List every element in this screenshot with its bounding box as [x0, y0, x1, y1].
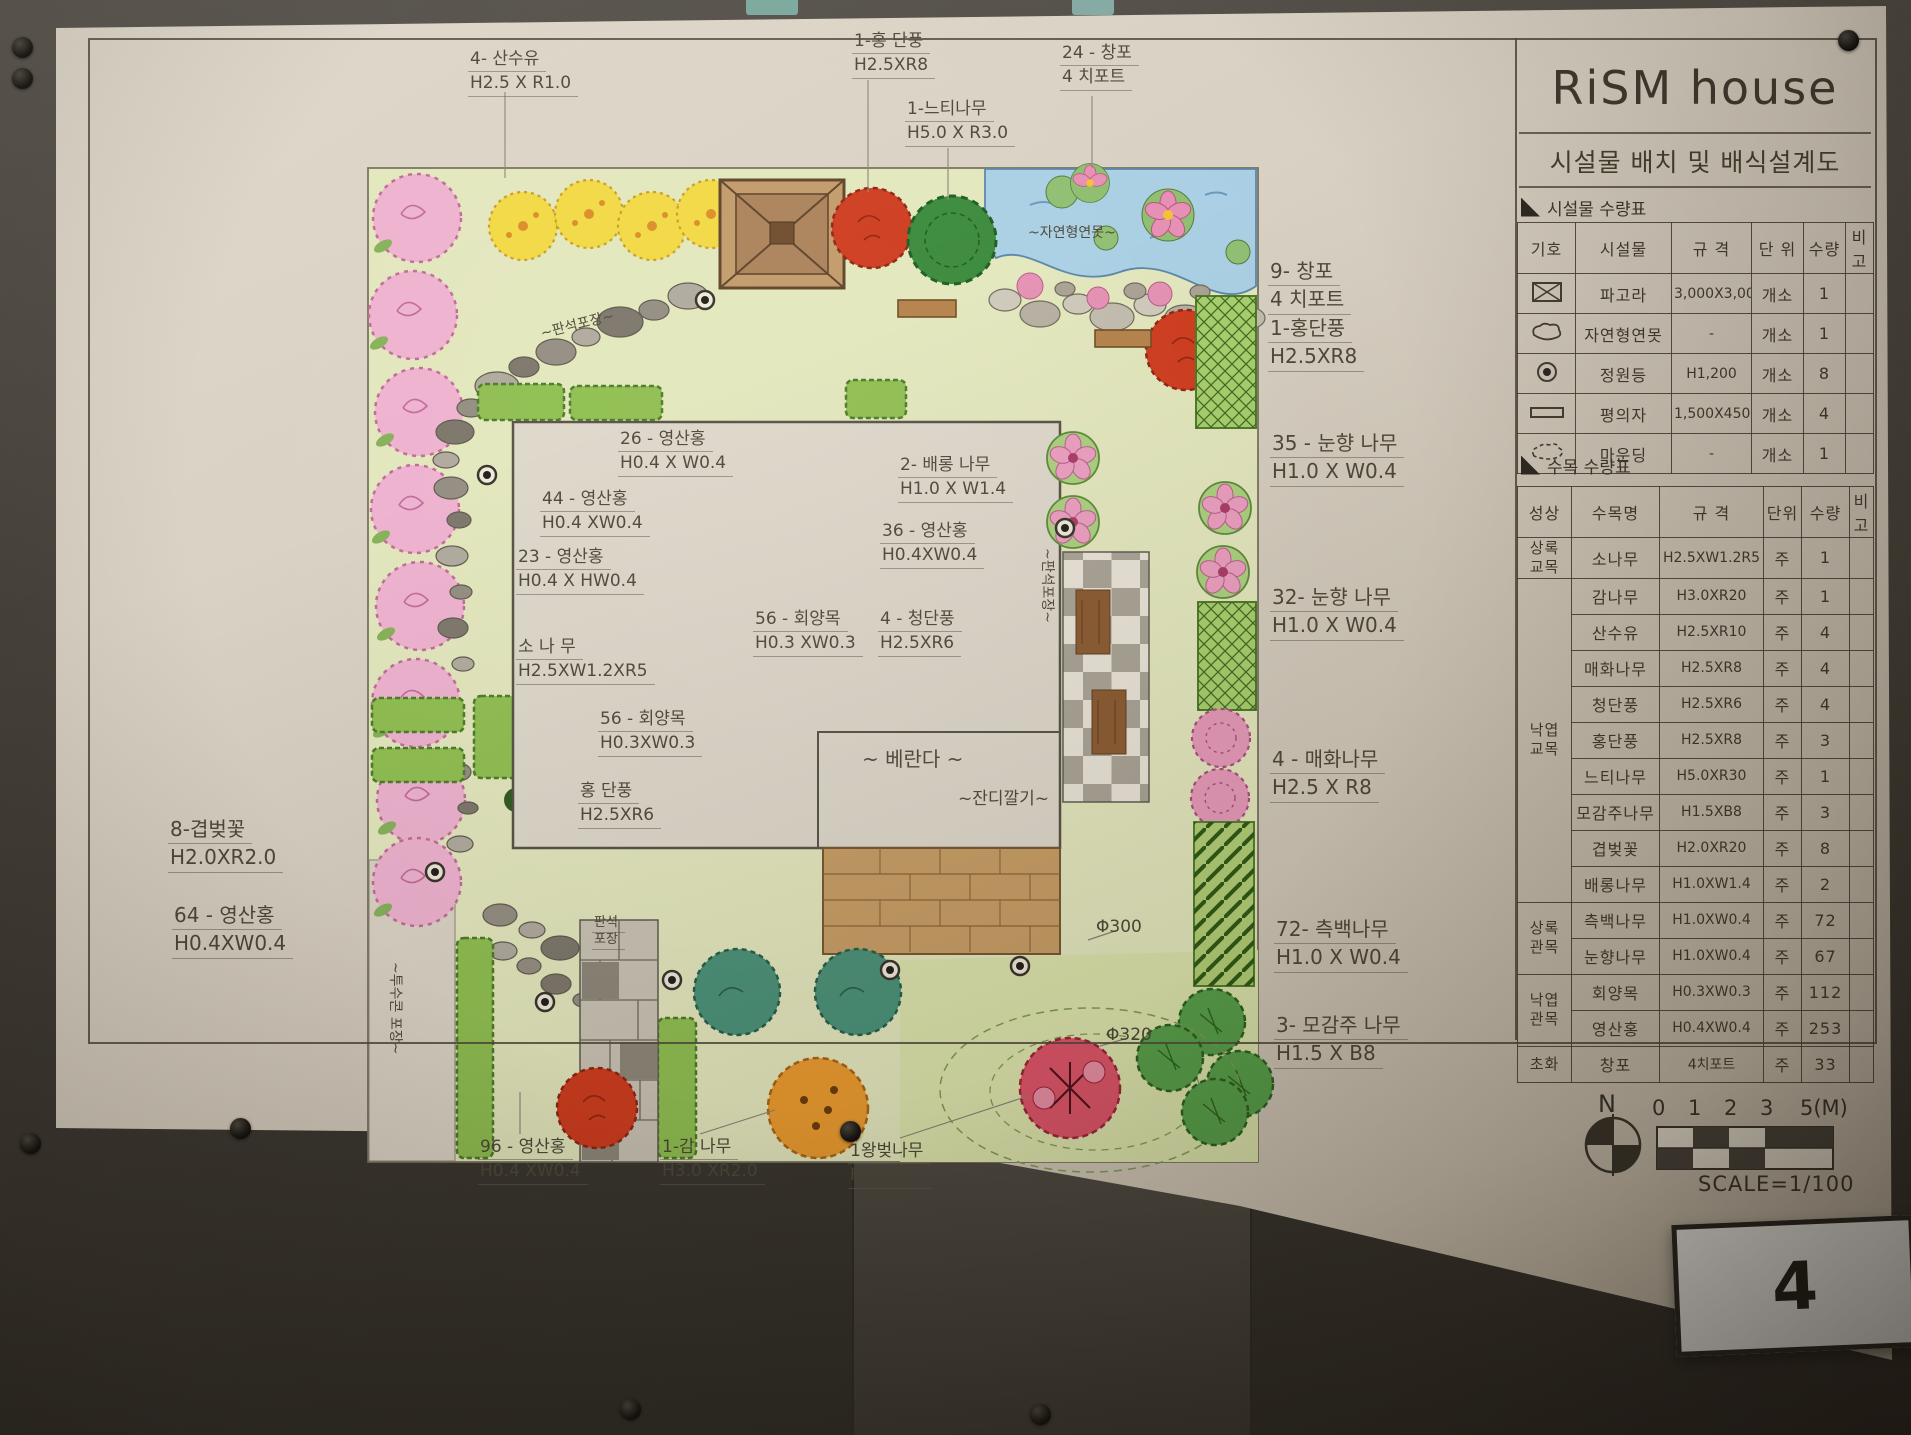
- tree-note: [1850, 938, 1874, 974]
- tree-header-cell: 성상: [1518, 487, 1572, 538]
- label-gyeopbeot-left-line: H2.0XR2.0: [168, 844, 283, 872]
- label-veranda-line: ~ 베란다 ~: [862, 746, 963, 772]
- tree-spec: H2.5XR8: [1660, 650, 1764, 686]
- tree-spec: H0.3XW0.3: [1660, 974, 1764, 1010]
- tree-note: [1850, 578, 1874, 614]
- label-cheukbaek-right: 72- 측백나무H1.0 X W0.4: [1274, 916, 1408, 973]
- label-hoeyang-56b-line: 56 - 회양목: [598, 708, 693, 732]
- label-sonamu-line: 소 나 무: [516, 636, 583, 660]
- label-lawn: ~잔디깔기~: [958, 788, 1049, 810]
- label-sansuyu-top-line: H2.5 X R1.0: [468, 72, 578, 96]
- tape-tab: [1072, 0, 1114, 15]
- tree-table-caption: 수목 수량표: [1521, 452, 1631, 478]
- drawing-subtitle: 시설물 배치 및 배식설계도: [1519, 136, 1871, 188]
- tree-unit: 주: [1764, 758, 1802, 794]
- tree-qty: 2: [1802, 866, 1850, 902]
- pond-icon: [1518, 314, 1576, 354]
- label-mogamju-right-line: 3- 모감주 나무: [1274, 1012, 1408, 1040]
- label-yeongsan-23-line: H0.4 X HW0.4: [516, 570, 644, 594]
- tree-name: 청단풍: [1572, 686, 1660, 722]
- label-changpo-right-line: H2.5XR8: [1268, 343, 1364, 371]
- tree-category: 상록 교목: [1518, 538, 1572, 579]
- facility-table-header: 기호시설물규 격단 위수량비고: [1518, 223, 1874, 274]
- tree-unit: 주: [1764, 1010, 1802, 1046]
- label-changpo-right: 9- 창포4 치포트1-홍단풍H2.5XR8: [1268, 258, 1364, 372]
- label-lawn-line: ~잔디깔기~: [958, 788, 1049, 810]
- tree-note: [1850, 830, 1874, 866]
- triangle-marker-icon: [1521, 456, 1540, 475]
- facility-header-cell: 비고: [1846, 223, 1874, 274]
- label-phi300-line: Φ300: [1096, 916, 1142, 938]
- tree-name: 회양목: [1572, 974, 1660, 1010]
- facility-header-cell: 시설물: [1576, 223, 1672, 274]
- facility-qty: 4: [1804, 394, 1846, 434]
- tree-row: 낙엽 관목회양목H0.3XW0.3주112: [1518, 974, 1874, 1010]
- facility-note: [1846, 274, 1874, 314]
- label-tusukon-line: ~투수콘 포장~: [386, 962, 404, 1054]
- scale-tick: 0: [1652, 1096, 1665, 1120]
- tree-unit: 주: [1764, 902, 1802, 938]
- label-hoeyang-56a-line: H0.3 XW0.3: [753, 632, 863, 656]
- label-gamnamu-bottom-line: 1-감 나무: [660, 1136, 738, 1160]
- label-changpo-top-line: 24 - 창포: [1060, 42, 1139, 66]
- facility-row: 자연형연못-개소1: [1518, 314, 1874, 354]
- pergola-icon: [1518, 274, 1576, 314]
- label-maehwa-right-line: 4 - 매화나무: [1270, 746, 1385, 774]
- label-yeongsan-96-line: 96 - 영산홍: [478, 1136, 573, 1160]
- tree-row: 매화나무H2.5XR8주4: [1518, 650, 1874, 686]
- tree-spec: H1.0XW1.4: [1660, 866, 1764, 902]
- label-cheukbaek-right-line: H1.0 X W0.4: [1274, 944, 1408, 972]
- tree-name: 산수유: [1572, 614, 1660, 650]
- facility-spec: H1,200: [1672, 354, 1752, 394]
- tree-spec: H1.0XW0.4: [1660, 938, 1764, 974]
- label-yeongsan-64-line: H0.4XW0.4: [172, 930, 293, 958]
- label-yeongsan-26: 26 - 영산홍H0.4 X W0.4: [618, 428, 733, 477]
- tree-row: 배롱나무H1.0XW1.4주2: [1518, 866, 1874, 902]
- tree-qty: 67: [1802, 938, 1850, 974]
- tree-unit: 주: [1764, 650, 1802, 686]
- label-panseok-block-line: 포장: [592, 933, 625, 950]
- label-wangbeot-bottom-line: 1왕벚나무: [848, 1140, 930, 1164]
- facility-row: 정원등H1,200개소8: [1518, 354, 1874, 394]
- facility-note: [1846, 354, 1874, 394]
- label-nunhyang-32-line: H1.0 X W0.4: [1270, 612, 1404, 640]
- magnet: [1030, 1404, 1051, 1425]
- tape-tab: [746, 0, 798, 15]
- label-changpo-top-line: 4 치포트: [1060, 66, 1132, 90]
- label-nunhyang-35: 35 - 눈향 나무H1.0 X W0.4: [1270, 430, 1404, 487]
- tree-spec: H2.5XR8: [1660, 722, 1764, 758]
- facility-row: 파고라3,000X3,000개소1: [1518, 274, 1874, 314]
- label-hoeyang-56b: 56 - 회양목H0.3XW0.3: [598, 708, 702, 757]
- tree-name: 창포: [1572, 1046, 1660, 1082]
- label-hoeyang-56b-line: H0.3XW0.3: [598, 732, 702, 756]
- tree-spec: H2.5XR10: [1660, 614, 1764, 650]
- label-neutinamu-top: 1-느티나무H5.0 X R3.0: [905, 98, 1015, 147]
- oak-blob: [1182, 1079, 1248, 1145]
- tree-note: [1850, 866, 1874, 902]
- label-nunhyang-35-line: H1.0 X W0.4: [1270, 458, 1404, 486]
- tree-unit: 주: [1764, 722, 1802, 758]
- tree-qty: 33: [1802, 1046, 1850, 1082]
- label-yeongsan-26-line: H0.4 X W0.4: [618, 452, 733, 476]
- facility-spec: 1,500X450: [1672, 394, 1752, 434]
- facility-note: [1846, 394, 1874, 434]
- label-changpo-right-line: 4 치포트: [1268, 286, 1351, 314]
- tree-qty: 3: [1802, 794, 1850, 830]
- tree-category: 낙엽 교목: [1518, 578, 1572, 902]
- tree-name: 소나무: [1572, 538, 1660, 579]
- label-yeongsan-44-line: H0.4 XW0.4: [540, 512, 650, 536]
- tree-name: 매화나무: [1572, 650, 1660, 686]
- drawing-title: RiSM house: [1519, 44, 1871, 134]
- tree-row: 홍단풍H2.5XR8주3: [1518, 722, 1874, 758]
- label-yeongsan-96: 96 - 영산홍H0.4 XW0.4: [478, 1136, 588, 1185]
- facility-note: [1846, 314, 1874, 354]
- label-neutinamu-top-line: 1-느티나무: [905, 98, 994, 122]
- tree-qty: 4: [1802, 614, 1850, 650]
- label-baerong-line: H1.0 X W1.4: [898, 478, 1013, 502]
- label-tusukon: ~투수콘 포장~: [386, 962, 404, 1054]
- tree-header-cell: 비고: [1850, 487, 1874, 538]
- label-yeongsan-64: 64 - 영산홍H0.4XW0.4: [172, 902, 293, 959]
- tree-name: 모감주나무: [1572, 794, 1660, 830]
- scale-tick: 5(M): [1800, 1096, 1848, 1120]
- tree-note: [1850, 650, 1874, 686]
- tree-note: [1850, 686, 1874, 722]
- label-hongdanpung-in-line: H2.5XR6: [578, 804, 661, 828]
- tree-row: 산수유H2.5XR10주4: [1518, 614, 1874, 650]
- facility-qty: 8: [1804, 354, 1846, 394]
- tree-header-cell: 규 격: [1660, 487, 1764, 538]
- label-baerong-line: 2- 배롱 나무: [898, 454, 997, 478]
- tree-note: [1850, 794, 1874, 830]
- tree-qty: 253: [1802, 1010, 1850, 1046]
- facility-spec: -: [1672, 434, 1752, 474]
- label-sansuyu-top: 4- 산수유H2.5 X R1.0: [468, 48, 578, 97]
- tree-row: 초화창포4치포트주33: [1518, 1046, 1874, 1082]
- tree-category: 초화: [1518, 1046, 1572, 1082]
- label-yeongsan-44: 44 - 영산홍H0.4 XW0.4: [540, 488, 650, 537]
- facility-name: 파고라: [1576, 274, 1672, 314]
- tree-unit: 주: [1764, 866, 1802, 902]
- magnet: [840, 1121, 861, 1142]
- facility-header-cell: 규 격: [1672, 223, 1752, 274]
- facility-header-cell: 단 위: [1752, 223, 1804, 274]
- label-gyeopbeot-left-line: 8-겹벚꽃: [168, 816, 252, 844]
- tree-unit: 주: [1764, 974, 1802, 1010]
- facility-qty: 1: [1804, 314, 1846, 354]
- label-cheongdanpung: 4 - 청단풍H2.5XR6: [878, 608, 962, 657]
- tree-unit: 주: [1764, 538, 1802, 579]
- label-yeongsan-96-line: H0.4 XW0.4: [478, 1160, 588, 1184]
- page-number-card: 4: [1671, 1215, 1911, 1357]
- label-panseok-block-line: 판석: [592, 916, 625, 933]
- facility-spec: 3,000X3,000: [1672, 274, 1752, 314]
- magnet: [12, 68, 33, 89]
- tree-name: 배롱나무: [1572, 866, 1660, 902]
- tree-note: [1850, 1046, 1874, 1082]
- tree-note: [1850, 722, 1874, 758]
- label-yeongsan-36-line: 36 - 영산홍: [880, 520, 975, 544]
- label-changpo-top: 24 - 창포4 치포트: [1060, 42, 1139, 91]
- label-cheongdanpung-line: 4 - 청단풍: [878, 608, 962, 632]
- label-panseok-vert: ~판석포장~: [1038, 548, 1056, 623]
- label-panseok-block: 판석포장: [592, 916, 625, 950]
- page-number: 4: [1770, 1247, 1819, 1326]
- tree-row: 낙엽 교목감나무H3.0XR20주1: [1518, 578, 1874, 614]
- tree-unit: 주: [1764, 614, 1802, 650]
- magnet: [20, 1133, 41, 1154]
- label-neutinamu-top-line: H5.0 X R3.0: [905, 122, 1015, 146]
- label-yeongsan-36-line: H0.4XW0.4: [880, 544, 984, 568]
- tree-row: 상록 교목소나무H2.5XW1.2R5주1: [1518, 538, 1874, 579]
- label-cheongdanpung-line: H2.5XR6: [878, 632, 961, 656]
- facility-header-cell: 수량: [1804, 223, 1846, 274]
- tree-qty: 4: [1802, 650, 1850, 686]
- garden-light-icon: [1518, 354, 1576, 394]
- label-panseok-vert-line: ~판석포장~: [1038, 548, 1056, 623]
- tree-name: 눈향나무: [1572, 938, 1660, 974]
- facility-unit: 개소: [1752, 394, 1804, 434]
- tree-row: 상록 관목측백나무H1.0XW0.4주72: [1518, 902, 1874, 938]
- tree-spec: H2.5XW1.2R5: [1660, 538, 1764, 579]
- tree-qty: 1: [1802, 578, 1850, 614]
- label-maehwa-right-line: H2.5 X R8: [1270, 774, 1379, 802]
- tree-qty: 8: [1802, 830, 1850, 866]
- tree-note: [1850, 974, 1874, 1010]
- tree-unit: 주: [1764, 578, 1802, 614]
- facility-spec: -: [1672, 314, 1752, 354]
- label-pond: ~자연형연못~: [1028, 224, 1116, 242]
- scale-tick: 3: [1760, 1096, 1773, 1120]
- label-yeongsan-64-line: 64 - 영산홍: [172, 902, 282, 930]
- label-hongdanpung-top-line: 1-홍 단풍: [852, 30, 930, 54]
- label-yeongsan-26-line: 26 - 영산홍: [618, 428, 713, 452]
- label-maehwa-right: 4 - 매화나무H2.5 X R8: [1270, 746, 1385, 803]
- scale-tick: 2: [1724, 1096, 1737, 1120]
- label-mogamju-right-line: H1.5 X B8: [1274, 1040, 1383, 1068]
- scale-tick: 1: [1688, 1096, 1701, 1120]
- tree-name: 홍단풍: [1572, 722, 1660, 758]
- label-yeongsan-23-line: 23 - 영산홍: [516, 546, 611, 570]
- label-yeongsan-36: 36 - 영산홍H0.4XW0.4: [880, 520, 984, 569]
- tree-qty: 3: [1802, 722, 1850, 758]
- label-yeongsan-44-line: 44 - 영산홍: [540, 488, 635, 512]
- label-sansuyu-top-line: 4- 산수유: [468, 48, 546, 72]
- label-changpo-right-line: 1-홍단풍: [1268, 315, 1352, 343]
- tree-row: 겹벚꽃H2.0XR20주8: [1518, 830, 1874, 866]
- facility-unit: 개소: [1752, 274, 1804, 314]
- tree-qty: 112: [1802, 974, 1850, 1010]
- label-gamnamu-bottom-line: H3.0 XR2.0: [660, 1160, 765, 1184]
- label-hoeyang-56a-line: 56 - 회양목: [753, 608, 848, 632]
- facility-qty: 1: [1804, 274, 1846, 314]
- scale-text: SCALE=1/100: [1698, 1172, 1854, 1196]
- label-mogamju-right: 3- 모감주 나무H1.5 X B8: [1274, 1012, 1408, 1069]
- facility-unit: 개소: [1752, 434, 1804, 474]
- magnet: [1838, 30, 1859, 51]
- label-nunhyang-35-line: 35 - 눈향 나무: [1270, 430, 1404, 458]
- label-hongdanpung-top: 1-홍 단풍H2.5XR8: [852, 30, 935, 79]
- tree-category: 낙엽 관목: [1518, 974, 1572, 1046]
- tree-unit: 주: [1764, 830, 1802, 866]
- tree-row: 느티나무H5.0XR30주1: [1518, 758, 1874, 794]
- tree-name: 느티나무: [1572, 758, 1660, 794]
- tree-note: [1850, 1010, 1874, 1046]
- tree-qty: 72: [1802, 902, 1850, 938]
- label-gamnamu-bottom: 1-감 나무H3.0 XR2.0: [660, 1136, 765, 1185]
- tree-note: [1850, 538, 1874, 579]
- tree-note: [1850, 614, 1874, 650]
- facility-header-cell: 기호: [1518, 223, 1576, 274]
- label-hongdanpung-top-line: H2.5XR8: [852, 54, 935, 78]
- tree-spec: H1.0XW0.4: [1660, 902, 1764, 938]
- tree-row: 모감주나무H1.5XB8주3: [1518, 794, 1874, 830]
- tree-row: 청단풍H2.5XR6주4: [1518, 686, 1874, 722]
- tree-spec: 4치포트: [1660, 1046, 1764, 1082]
- label-wangbeot-bottom: 1왕벚나무H3.5XB5: [848, 1140, 931, 1189]
- facility-unit: 개소: [1752, 314, 1804, 354]
- triangle-marker-icon: [1521, 198, 1540, 217]
- label-cheukbaek-right-line: 72- 측백나무: [1274, 916, 1396, 944]
- facility-row: 평의자1,500X450개소4: [1518, 394, 1874, 434]
- tree-qty: 1: [1802, 758, 1850, 794]
- label-changpo-right-line: 9- 창포: [1268, 258, 1340, 286]
- facility-name: 평의자: [1576, 394, 1672, 434]
- tree-note: [1850, 902, 1874, 938]
- label-phi320-line: Φ320: [1106, 1024, 1152, 1046]
- tree-qty: 1: [1802, 538, 1850, 579]
- tree-unit: 주: [1764, 686, 1802, 722]
- facility-table-caption: 시설물 수량표: [1521, 194, 1646, 220]
- magnet: [12, 37, 33, 58]
- scale-bar: [1656, 1126, 1846, 1172]
- tree-name: 영산홍: [1572, 1010, 1660, 1046]
- tree-name: 겹벚꽃: [1572, 830, 1660, 866]
- tree-spec: H3.0XR20: [1660, 578, 1764, 614]
- cherry-blossom-tree: [1020, 1038, 1120, 1138]
- tree-category: 상록 관목: [1518, 902, 1572, 974]
- facility-quantity-table: 기호시설물규 격단 위수량비고파고라3,000X3,000개소1자연형연못-개소…: [1517, 222, 1874, 474]
- tree-name: 감나무: [1572, 578, 1660, 614]
- tree-qty: 4: [1802, 686, 1850, 722]
- label-baerong: 2- 배롱 나무H1.0 X W1.4: [898, 454, 1013, 503]
- tree-table-header: 성상수목명규 격단위수량비고: [1518, 487, 1874, 538]
- tree-unit: 주: [1764, 938, 1802, 974]
- label-hoeyang-56a: 56 - 회양목H0.3 XW0.3: [753, 608, 863, 657]
- facility-unit: 개소: [1752, 354, 1804, 394]
- label-phi320: Φ320: [1106, 1024, 1152, 1046]
- facility-name: 정원등: [1576, 354, 1672, 394]
- label-gyeopbeot-left: 8-겹벚꽃H2.0XR2.0: [168, 816, 283, 873]
- tree-spec: H0.4XW0.4: [1660, 1010, 1764, 1046]
- label-sonamu: 소 나 무H2.5XW1.2XR5: [516, 636, 655, 685]
- label-veranda: ~ 베란다 ~: [862, 746, 963, 772]
- tree-row: 눈향나무H1.0XW0.4주67: [1518, 938, 1874, 974]
- tree-name: 측백나무: [1572, 902, 1660, 938]
- label-yeongsan-23: 23 - 영산홍H0.4 X HW0.4: [516, 546, 644, 595]
- tree-spec: H5.0XR30: [1660, 758, 1764, 794]
- facility-qty: 1: [1804, 434, 1846, 474]
- label-nunhyang-32-line: 32- 눈향 나무: [1270, 584, 1398, 612]
- tree-note: [1850, 758, 1874, 794]
- tree-row: 영산홍H0.4XW0.4주253: [1518, 1010, 1874, 1046]
- tree-header-cell: 수량: [1802, 487, 1850, 538]
- facility-name: 자연형연못: [1576, 314, 1672, 354]
- magnet: [620, 1399, 641, 1420]
- tree-spec: H2.0XR20: [1660, 830, 1764, 866]
- tree-spec: H2.5XR6: [1660, 686, 1764, 722]
- facility-note: [1846, 434, 1874, 474]
- label-wangbeot-bottom-line: H3.5XB5: [848, 1164, 931, 1188]
- tree-header-cell: 수목명: [1572, 487, 1660, 538]
- label-hongdanpung-in: 홍 단풍H2.5XR6: [578, 780, 661, 829]
- tree-header-cell: 단위: [1764, 487, 1802, 538]
- label-pond-line: ~자연형연못~: [1028, 224, 1116, 242]
- tree-spec: H1.5XB8: [1660, 794, 1764, 830]
- label-phi300: Φ300: [1096, 916, 1142, 938]
- north-compass-icon: [1580, 1112, 1650, 1182]
- tree-unit: 주: [1764, 794, 1802, 830]
- tree-unit: 주: [1764, 1046, 1802, 1082]
- label-sonamu-line: H2.5XW1.2XR5: [516, 660, 655, 684]
- bench-icon: [1518, 394, 1576, 434]
- label-nunhyang-32: 32- 눈향 나무H1.0 X W0.4: [1270, 584, 1404, 641]
- label-hongdanpung-in-line: 홍 단풍: [578, 780, 639, 804]
- tree-quantity-table: 성상수목명규 격단위수량비고상록 교목소나무H2.5XW1.2R5주1낙엽 교목…: [1517, 486, 1874, 1083]
- magnet: [230, 1118, 251, 1139]
